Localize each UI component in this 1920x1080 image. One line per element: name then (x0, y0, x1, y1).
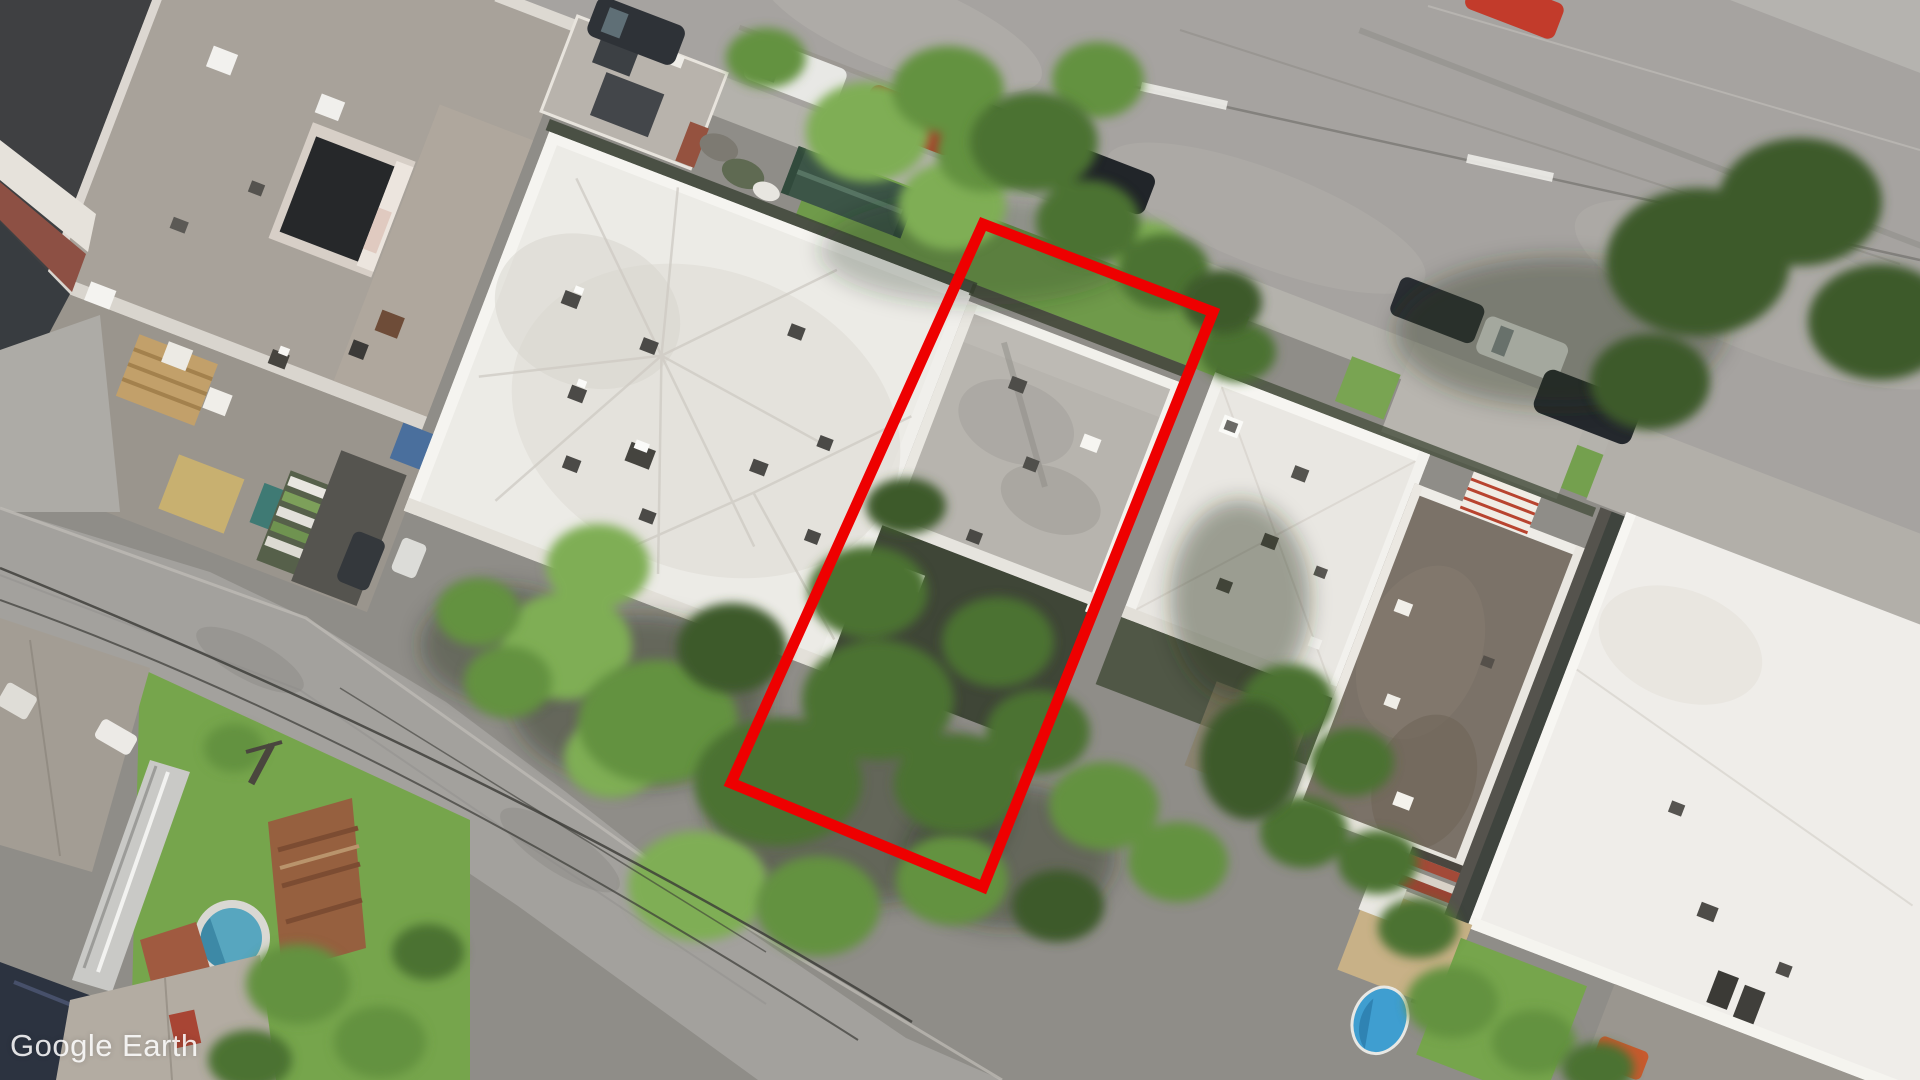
tree-canopy (1310, 728, 1394, 796)
tree-canopy (866, 478, 946, 534)
tree-canopy (1378, 898, 1458, 958)
tree-canopy (1590, 334, 1710, 430)
satellite-imagery (0, 0, 1920, 1080)
left-pavement (0, 315, 120, 512)
google-earth-watermark: Google Earth (10, 1028, 199, 1064)
tree-canopy (677, 603, 787, 693)
tree-canopy (1200, 700, 1300, 820)
tree-canopy (436, 578, 520, 646)
tree-canopy (942, 597, 1054, 687)
tree-canopy (334, 1006, 426, 1078)
tree-canopy (464, 646, 552, 718)
tree-canopy (1012, 870, 1104, 942)
tree-canopy (246, 944, 350, 1024)
tree-canopy (1338, 830, 1418, 894)
tree-canopy-large (1718, 138, 1882, 266)
tree-canopy (970, 92, 1098, 192)
tree-canopy (1128, 822, 1228, 902)
tree-canopy (392, 924, 464, 980)
tree-canopy (1406, 966, 1498, 1038)
tree-canopy (726, 28, 806, 88)
google-earth-viewport: Google Earth (0, 0, 1920, 1080)
